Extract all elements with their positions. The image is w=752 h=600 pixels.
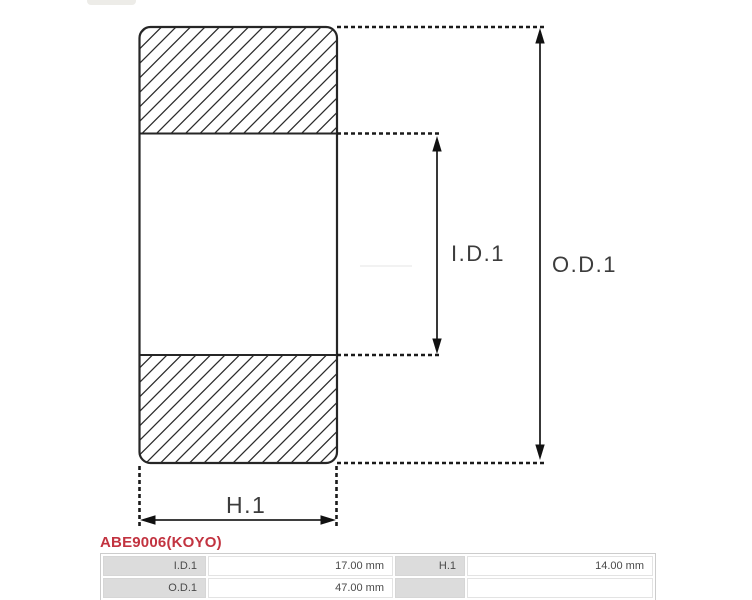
spec-row-1: I.D.1 17.00 mm H.1 14.00 mm bbox=[103, 556, 653, 576]
spec-value-h1: 14.00 mm bbox=[467, 556, 653, 576]
spec-table: I.D.1 17.00 mm H.1 14.00 mm O.D.1 47.00 … bbox=[100, 553, 656, 600]
h1-label: H.1 bbox=[226, 492, 266, 518]
spec-label-empty bbox=[395, 578, 465, 598]
bearing-cross-section bbox=[140, 27, 338, 463]
od1-dimension-arrow bbox=[535, 28, 544, 460]
bearing-dimension-diagram: I.D.1 O.D.1 H.1 bbox=[0, 0, 752, 540]
spec-label-od1: O.D.1 bbox=[103, 578, 206, 598]
page: I.D.1 O.D.1 H.1 ABE9006(KOYO) I.D.1 17.0… bbox=[0, 0, 752, 600]
spec-value-od1: 47.00 mm bbox=[208, 578, 393, 598]
id1-dimension-arrow bbox=[432, 136, 441, 354]
id1-label: I.D.1 bbox=[451, 241, 505, 266]
od1-label: O.D.1 bbox=[552, 252, 617, 277]
hatched-outer-ring-top bbox=[140, 27, 338, 134]
hatched-outer-ring-bottom bbox=[140, 355, 338, 463]
spec-row-2: O.D.1 47.00 mm bbox=[103, 578, 653, 598]
spec-label-h1: H.1 bbox=[395, 556, 465, 576]
product-code-heading: ABE9006(KOYO) bbox=[100, 534, 222, 551]
spec-label-id1: I.D.1 bbox=[103, 556, 206, 576]
spec-value-id1: 17.00 mm bbox=[208, 556, 393, 576]
spec-value-empty bbox=[467, 578, 653, 598]
